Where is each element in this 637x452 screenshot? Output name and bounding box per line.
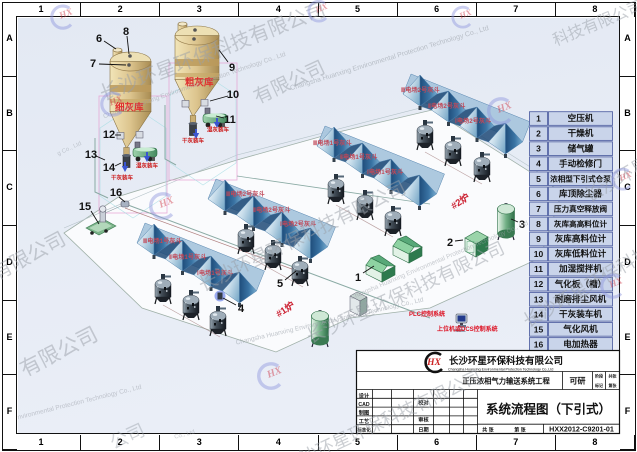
svg-text:湿灰装车: 湿灰装车 bbox=[207, 126, 230, 134]
svg-text:湿灰装车: 湿灰装车 bbox=[136, 162, 159, 170]
svg-text:灰库高料位计: 灰库高料位计 bbox=[555, 233, 607, 244]
svg-text:可研: 可研 bbox=[570, 377, 586, 386]
svg-text:设计: 设计 bbox=[359, 392, 370, 400]
svg-text:CAD: CAD bbox=[358, 402, 369, 408]
svg-text:PLC控制系统: PLC控制系统 bbox=[409, 310, 445, 318]
svg-text:2: 2 bbox=[447, 237, 453, 249]
svg-text:2: 2 bbox=[536, 129, 541, 139]
svg-text:9: 9 bbox=[536, 234, 541, 244]
svg-text:15: 15 bbox=[79, 201, 91, 213]
svg-text:共张: 共张 bbox=[609, 373, 618, 379]
svg-text:压力真空释放阀: 压力真空释放阀 bbox=[554, 203, 608, 213]
svg-text:Ⅰ电场2号灰斗: Ⅰ电场2号灰斗 bbox=[455, 117, 491, 125]
svg-text:储气罐: 储气罐 bbox=[568, 142, 594, 153]
svg-text:3: 3 bbox=[536, 144, 541, 154]
svg-text:第张: 第张 bbox=[609, 382, 618, 388]
svg-text:上位机或DCS控制系统: 上位机或DCS控制系统 bbox=[437, 325, 498, 333]
svg-text:16: 16 bbox=[110, 187, 122, 199]
svg-text:灰库低料位计: 灰库低料位计 bbox=[555, 248, 607, 259]
svg-text:7: 7 bbox=[536, 204, 541, 214]
svg-text:11: 11 bbox=[534, 264, 543, 274]
svg-text:1: 1 bbox=[355, 272, 361, 284]
svg-text:电加热器: 电加热器 bbox=[563, 338, 598, 349]
svg-text:12: 12 bbox=[534, 279, 544, 289]
svg-text:HX: HX bbox=[426, 358, 441, 368]
svg-text:1: 1 bbox=[536, 114, 541, 124]
svg-text:灰库高高料位计: 灰库高高料位计 bbox=[554, 219, 608, 229]
svg-text:16: 16 bbox=[534, 339, 544, 349]
svg-text:7: 7 bbox=[90, 58, 96, 70]
svg-text:Ⅱ电场1号灰斗: Ⅱ电场1号灰斗 bbox=[169, 253, 206, 261]
svg-text:阶段: 阶段 bbox=[595, 373, 603, 379]
svg-text:10: 10 bbox=[534, 249, 544, 259]
svg-text:4: 4 bbox=[238, 303, 245, 315]
svg-text:干燥机: 干燥机 bbox=[568, 127, 594, 138]
svg-text:5: 5 bbox=[277, 278, 283, 290]
svg-text:共 张: 共 张 bbox=[482, 426, 494, 433]
svg-text:4: 4 bbox=[536, 159, 541, 169]
svg-text:制图: 制图 bbox=[359, 409, 369, 417]
svg-text:系统流程图（下引式）: 系统流程图（下引式） bbox=[486, 402, 611, 417]
svg-text:干灰装车: 干灰装车 bbox=[111, 174, 134, 182]
svg-text:干灰装车: 干灰装车 bbox=[182, 137, 205, 145]
svg-text:审核: 审核 bbox=[418, 416, 429, 424]
svg-text:5: 5 bbox=[536, 174, 541, 184]
svg-text:Changsha Huanxing Environmenta: Changsha Huanxing Environmental Protecti… bbox=[448, 368, 553, 372]
svg-text:6: 6 bbox=[536, 189, 541, 199]
svg-text:Ⅲ电场1号灰斗: Ⅲ电场1号灰斗 bbox=[313, 139, 352, 147]
svg-text:Ⅲ电场2号灰斗: Ⅲ电场2号灰斗 bbox=[401, 86, 440, 94]
svg-text:Ⅱ电场2号灰斗: Ⅱ电场2号灰斗 bbox=[253, 206, 290, 214]
svg-text:Ⅲ电场2号灰斗: Ⅲ电场2号灰斗 bbox=[226, 190, 265, 198]
svg-text:手动检修门: 手动检修门 bbox=[559, 157, 602, 168]
svg-text:第 张: 第 张 bbox=[514, 426, 526, 433]
svg-text:14: 14 bbox=[103, 162, 116, 174]
svg-text:标记: 标记 bbox=[594, 382, 603, 388]
svg-text:Ⅲ电场1号灰斗: Ⅲ电场1号灰斗 bbox=[143, 237, 182, 245]
svg-text:13: 13 bbox=[85, 149, 97, 161]
svg-text:10: 10 bbox=[227, 89, 239, 101]
svg-text:气化风机: 气化风机 bbox=[562, 323, 598, 334]
svg-text:8: 8 bbox=[536, 219, 541, 229]
svg-text:11: 11 bbox=[224, 114, 236, 126]
svg-text:12: 12 bbox=[103, 129, 115, 141]
svg-text:Ⅱ电场2号灰斗: Ⅱ电场2号灰斗 bbox=[428, 102, 465, 110]
svg-text:6: 6 bbox=[96, 33, 102, 45]
svg-text:空压机: 空压机 bbox=[568, 112, 594, 123]
svg-text:HXX2012-C9201-01: HXX2012-C9201-01 bbox=[549, 425, 614, 434]
svg-text:Ⅰ电场1号灰斗: Ⅰ电场1号灰斗 bbox=[367, 168, 403, 176]
svg-text:Ⅱ电场1号灰斗: Ⅱ电场1号灰斗 bbox=[340, 153, 377, 161]
svg-text:日期: 日期 bbox=[418, 426, 428, 434]
svg-text:长沙环星环保科技有限公司: 长沙环星环保科技有限公司 bbox=[449, 355, 563, 367]
svg-text:8: 8 bbox=[123, 26, 129, 38]
